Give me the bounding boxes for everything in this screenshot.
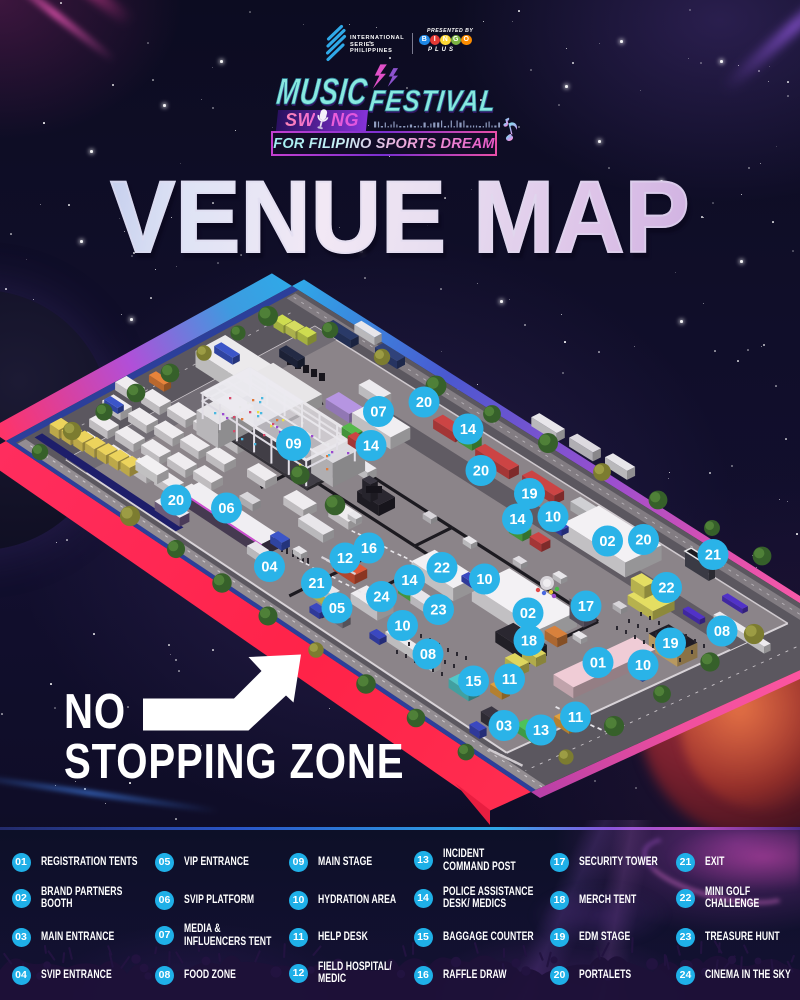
- svg-text:14: 14: [509, 512, 525, 528]
- svg-text:03: 03: [496, 719, 512, 735]
- svg-text:01: 01: [590, 656, 606, 672]
- svg-text:02: 02: [520, 606, 536, 622]
- svg-text:14: 14: [460, 422, 476, 438]
- svg-text:11: 11: [568, 710, 583, 726]
- svg-text:17: 17: [578, 599, 594, 615]
- svg-text:21: 21: [705, 548, 721, 564]
- svg-text:05: 05: [329, 601, 345, 617]
- svg-text:04: 04: [261, 560, 277, 576]
- svg-text:20: 20: [473, 464, 489, 480]
- svg-text:14: 14: [363, 439, 379, 455]
- svg-text:20: 20: [168, 493, 184, 509]
- svg-text:10: 10: [545, 510, 561, 526]
- svg-text:08: 08: [714, 624, 730, 640]
- svg-text:19: 19: [662, 636, 678, 652]
- svg-text:19: 19: [521, 487, 537, 503]
- svg-text:10: 10: [635, 658, 651, 674]
- svg-text:23: 23: [430, 603, 446, 619]
- svg-text:02: 02: [599, 534, 615, 550]
- svg-text:06: 06: [218, 501, 234, 517]
- svg-text:09: 09: [285, 437, 301, 453]
- svg-text:21: 21: [308, 576, 324, 592]
- svg-text:08: 08: [420, 647, 436, 663]
- svg-text:20: 20: [416, 395, 432, 411]
- svg-text:15: 15: [465, 674, 481, 690]
- svg-text:20: 20: [635, 533, 651, 549]
- svg-text:10: 10: [394, 619, 410, 635]
- svg-text:14: 14: [401, 573, 417, 589]
- svg-text:16: 16: [361, 541, 377, 557]
- svg-text:13: 13: [533, 723, 549, 739]
- svg-text:18: 18: [521, 634, 537, 650]
- svg-text:22: 22: [658, 581, 674, 597]
- svg-text:10: 10: [476, 572, 492, 588]
- svg-text:22: 22: [434, 561, 450, 577]
- svg-text:11: 11: [502, 672, 517, 688]
- svg-text:24: 24: [373, 590, 389, 606]
- svg-text:12: 12: [337, 551, 353, 567]
- svg-text:07: 07: [370, 405, 386, 421]
